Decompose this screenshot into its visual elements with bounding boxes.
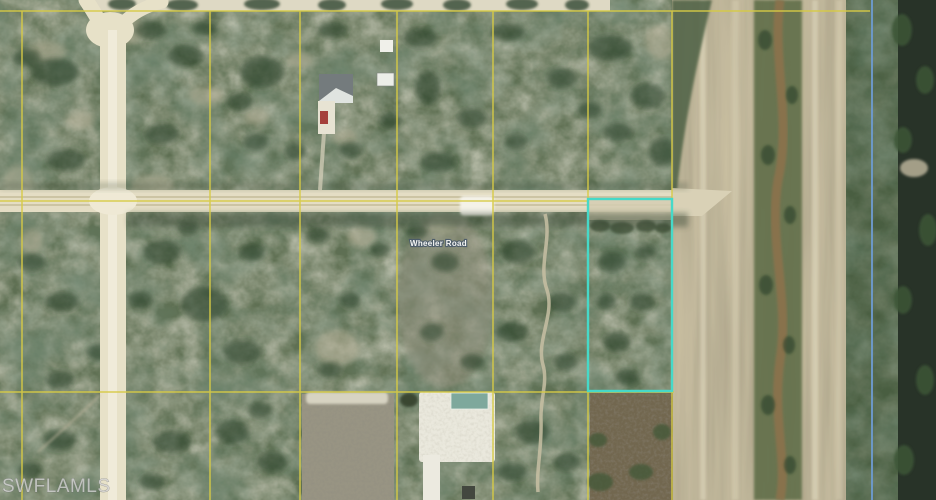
street-label: Wheeler Road <box>410 239 467 248</box>
haze-overlay <box>0 0 936 500</box>
aerial-parcel-map-photo: Wheeler Road SWFLAMLS <box>0 0 936 500</box>
mls-watermark: SWFLAMLS <box>2 476 111 497</box>
satellite-map: Wheeler Road SWFLAMLS <box>0 0 936 500</box>
